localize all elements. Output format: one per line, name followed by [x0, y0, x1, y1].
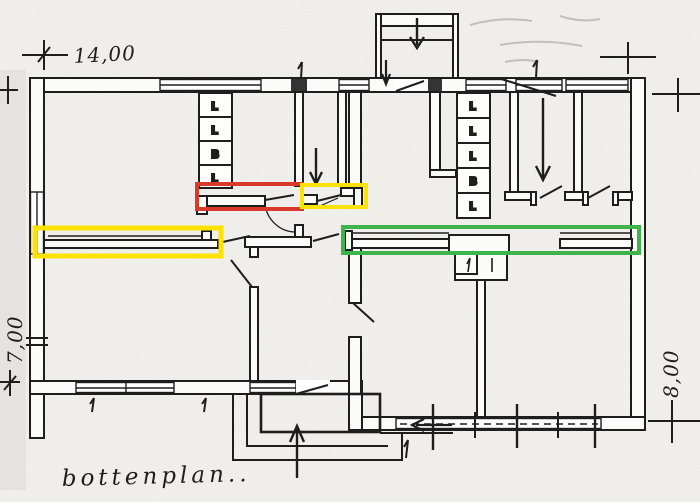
closet-cell-label: L	[469, 100, 476, 113]
wall-pier	[291, 78, 307, 93]
closet-cell-label: L	[211, 124, 218, 137]
dimension-left-label: 7,00	[3, 315, 27, 364]
closet-cell-label: B	[469, 175, 477, 188]
closet-column-left: L L B L	[199, 93, 232, 188]
closet-cell-label: L	[469, 125, 476, 138]
floor-plan-scan: L L B L L L L B L	[0, 0, 700, 502]
closet-cell-label: L	[469, 200, 476, 213]
scan-edge-shadow	[0, 70, 26, 490]
plan-caption: bottenplan..	[61, 461, 250, 492]
closet-cell-label: L	[211, 100, 218, 113]
dimension-right-label: 8,00	[659, 349, 683, 398]
closet-cell-label: L	[469, 150, 476, 163]
wall-pier	[428, 78, 442, 93]
dimension-top-label: 14,00	[73, 41, 136, 68]
closet-cell-label: B	[211, 148, 219, 161]
floor-plan-drawing: L L B L L L L B L	[0, 0, 700, 502]
